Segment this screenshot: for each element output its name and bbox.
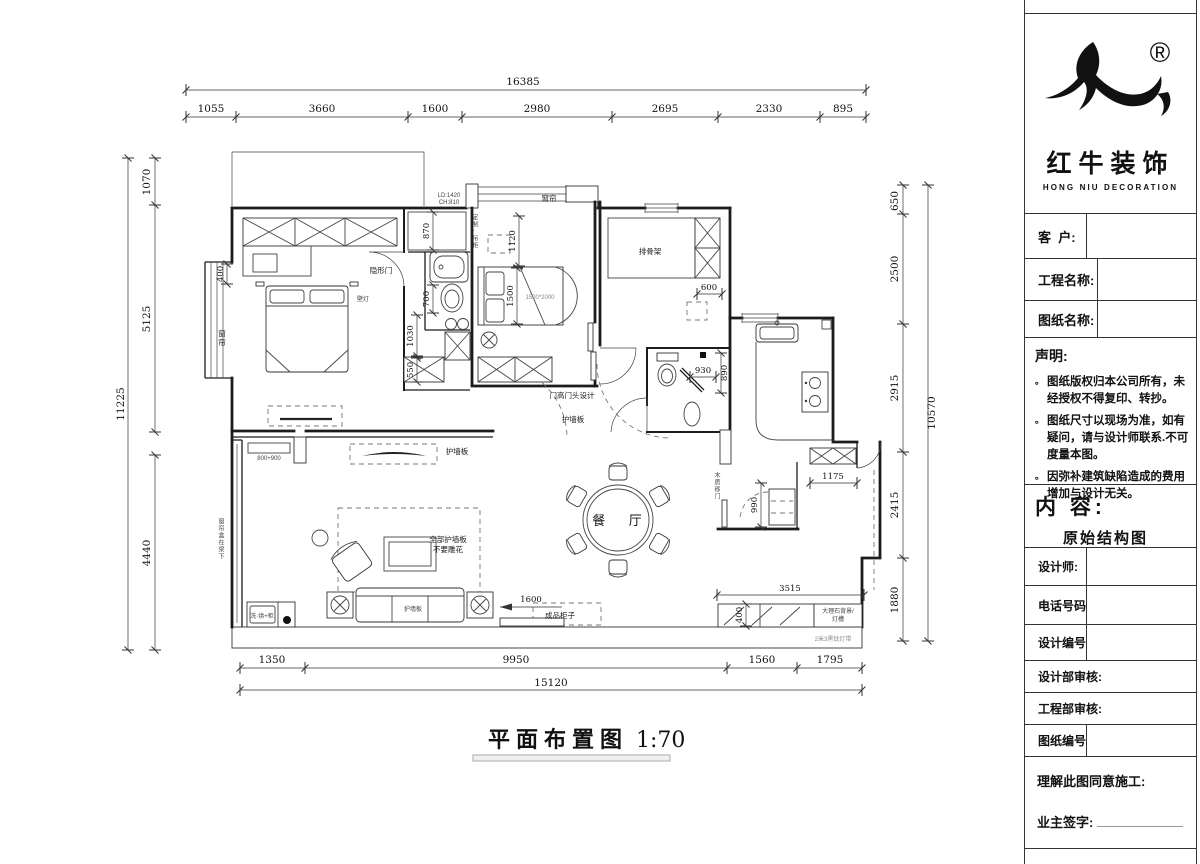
dim-930: 930 <box>695 366 711 376</box>
dim-700: 700 <box>422 291 432 307</box>
dim-right-2: 2500 <box>889 256 901 283</box>
dimension-chain-left: 11225 1070 5125 4440 <box>115 158 155 650</box>
dim-top-4: 2980 <box>524 103 551 115</box>
note-cabinet: 成品柜子 <box>545 610 575 620</box>
dim-left-2: 5125 <box>141 306 153 333</box>
note-bedsize: 1500*2000 <box>525 295 555 301</box>
sheet-no-label: 图纸编号 <box>1025 732 1086 749</box>
note-panel-1: 护墙板 <box>562 414 585 424</box>
customer-value-field[interactable] <box>1086 214 1196 258</box>
dim-top-6: 2330 <box>756 103 783 115</box>
content-value: 原始结构图 <box>1063 527 1188 548</box>
statement-block: 声明: 图纸版权归本公司所有，未经授权不得复印、转抄。 图纸尺寸以现场为准，如有… <box>1025 338 1196 485</box>
statement-item: 图纸尺寸以现场为准，如有疑问，请与设计师联系.不可度量本图。 <box>1047 413 1190 463</box>
dim-left-total: 11225 <box>115 387 127 420</box>
dim-400: 400 <box>216 266 226 282</box>
drawing-name-label: 图纸名称: <box>1025 310 1094 329</box>
bull-logo-icon: ® <box>1036 32 1186 142</box>
statement-item: 图纸版权归本公司所有，未经授权不得复印、转抄。 <box>1047 374 1190 407</box>
note-marble: 大理石背景/ <box>822 607 854 615</box>
sheet-title-scale: 1:70 <box>636 728 685 753</box>
tv <box>362 452 426 456</box>
dim-1030: 1030 <box>406 325 416 347</box>
dim-bottom-total: 15120 <box>534 677 567 689</box>
note-hidden-door: 隐形门 <box>370 265 393 275</box>
project-label: 工程名称: <box>1025 270 1094 289</box>
dim-right-5: 1880 <box>889 587 901 614</box>
logo-area: ® 红牛装饰 HONG NIU DECORATION <box>1025 14 1196 214</box>
project-value-field[interactable] <box>1097 259 1196 300</box>
note-sliding-door: 木质移门 <box>713 471 720 500</box>
sheet-title: 平面布置图 1:70 <box>473 727 685 761</box>
stove <box>802 372 828 412</box>
note-wall-lamp: 壁灯 <box>357 295 369 303</box>
eng-review-label: 工程部审核: <box>1025 700 1102 717</box>
dim-1175: 1175 <box>822 472 844 482</box>
dim-top-5: 2695 <box>652 103 679 115</box>
design-no-label: 设计编号 <box>1025 634 1086 651</box>
drawing-sheet: 16385 1055 3660 1600 2980 2695 2330 895 … <box>0 0 1200 864</box>
toilet <box>657 353 678 361</box>
dim-right-3: 2915 <box>889 375 901 402</box>
dim-870: 870 <box>422 223 432 239</box>
design-no-value-field[interactable] <box>1086 625 1196 660</box>
row-project: 工程名称: <box>1025 259 1196 301</box>
dimension-chain-bottom: 1350 9950 1560 1795 15120 <box>240 654 862 690</box>
dim-3515: 3515 <box>779 584 801 594</box>
bedroom3-furniture <box>608 218 720 320</box>
note-light-trough: 灯槽 <box>832 615 844 623</box>
note-slat-frame: 排骨架 <box>639 246 662 256</box>
master-bedroom-furniture <box>243 218 397 426</box>
bathtub <box>430 252 468 282</box>
note-custom-cabinet: 定制·吊柜 <box>471 213 478 249</box>
row-customer: 客 户: <box>1025 214 1196 259</box>
statement-list: 图纸版权归本公司所有，未经授权不得复印、转抄。 图纸尺寸以现场为准，如有疑问，请… <box>1035 374 1190 503</box>
dim-1120: 1120 <box>508 230 518 252</box>
owner-sign-label: 业主签字: <box>1037 815 1093 830</box>
statement-title: 声明: <box>1035 346 1190 366</box>
dim-bottom-3: 1560 <box>749 654 776 666</box>
note-all-panel: 全部护墙板 <box>429 534 467 544</box>
sofa <box>356 588 464 622</box>
registered-mark: ® <box>1149 37 1170 68</box>
note-panel-2: 护墙板 <box>446 446 469 456</box>
row-designer: 设计师: <box>1025 548 1196 586</box>
dim-400b: 400 <box>735 607 745 623</box>
dim-550: 550 <box>406 362 416 378</box>
dim-600: 600 <box>701 283 717 293</box>
dim-left-1: 1070 <box>141 169 153 196</box>
bedroom2-furniture <box>478 235 577 382</box>
row-design-no: 设计编号 <box>1025 625 1196 661</box>
dim-right-total: 10570 <box>926 396 938 429</box>
note-door-head: 门高门头设计 <box>550 390 595 400</box>
dim-top-7: 895 <box>833 103 853 115</box>
note-curtain-win: 窗帘 <box>542 193 557 203</box>
row-eng-review: 工程部审核: <box>1025 693 1196 725</box>
dim-990: 990 <box>750 497 760 513</box>
room-label-dining: 餐 厅 <box>592 513 652 528</box>
phone-value-field[interactable] <box>1086 586 1196 624</box>
row-phone: 电话号码 <box>1025 586 1196 625</box>
dim-bottom-1: 1350 <box>259 654 286 666</box>
dim-right-1: 650 <box>889 191 901 211</box>
note-ch: CH:810 <box>439 200 460 206</box>
dim-left-3: 4440 <box>141 540 153 567</box>
note-no-carve: 不要雕花 <box>433 544 463 554</box>
note-ld: LD:1420 <box>438 193 461 199</box>
dimension-chain-top: 16385 1055 3660 1600 2980 2695 2330 895 <box>186 76 866 117</box>
kitchen-fixtures <box>756 320 833 525</box>
row-design-review: 设计部审核: <box>1025 661 1196 693</box>
row-drawing-name: 图纸名称: <box>1025 301 1196 338</box>
floor-plan-canvas: 16385 1055 3660 1600 2980 2695 2330 895 … <box>0 0 1024 864</box>
title-block: ® 红牛装饰 HONG NIU DECORATION 客 户: 工程名称: 图纸… <box>1024 0 1197 864</box>
dim-right-4: 2415 <box>889 492 901 519</box>
dim-top-1: 1055 <box>198 103 225 115</box>
dimension-chain-right: 650 2500 2915 2415 1880 10570 <box>889 185 938 641</box>
row-sheet-no: 图纸编号 <box>1025 725 1196 757</box>
designer-value-field[interactable] <box>1086 548 1196 585</box>
brand-name-cn: 红牛装饰 <box>1046 144 1174 180</box>
fridge <box>769 489 795 525</box>
sheet-no-value-field[interactable] <box>1086 725 1196 756</box>
master-bed <box>266 286 348 372</box>
note-washer: 洗·烘+柜 <box>250 612 274 620</box>
note-beam: 窗帘盒在梁下 <box>217 517 224 560</box>
dim-bottom-4: 1795 <box>817 654 844 666</box>
sheet-title-name: 平面布置图 <box>488 727 628 752</box>
dim-top-3: 1600 <box>422 103 449 115</box>
statement-item: 因弥补建筑缺陷造成的费用增加与设计无关。 <box>1047 469 1190 502</box>
signature-block: 理解此图同意施工: 业主签字: <box>1025 757 1196 848</box>
dining-furniture <box>500 463 862 627</box>
note-curtain-bay: 窗帘 <box>218 329 227 348</box>
title-underline-bar <box>473 755 670 761</box>
agree-label: 理解此图同意施工: <box>1037 771 1188 790</box>
phone-label: 电话号码 <box>1025 597 1086 614</box>
dim-890: 890 <box>720 365 730 381</box>
armchair <box>329 538 374 583</box>
drawing-name-value-field[interactable] <box>1097 301 1196 337</box>
dim-1500: 1500 <box>506 285 516 307</box>
note-light-strip: 2米3黑钛灯带 <box>815 635 852 643</box>
note-panel-3: 护墙板 <box>404 605 422 613</box>
dim-1600: 1600 <box>520 595 542 605</box>
note-niche: 800+900 <box>257 456 281 462</box>
brand-name-en: HONG NIU DECORATION <box>1043 183 1178 192</box>
owner-signature-line[interactable] <box>1097 814 1183 827</box>
dim-top-2: 3660 <box>309 103 336 115</box>
designer-label: 设计师: <box>1025 558 1078 575</box>
customer-label: 客 户: <box>1025 227 1076 246</box>
design-review-label: 设计部审核: <box>1025 668 1102 685</box>
dim-top-total: 16385 <box>506 76 539 88</box>
title-block-inner: ® 红牛装饰 HONG NIU DECORATION 客 户: 工程名称: 图纸… <box>1025 13 1196 849</box>
dim-bottom-2: 9950 <box>503 654 530 666</box>
utility-bath-fixtures <box>404 212 470 382</box>
